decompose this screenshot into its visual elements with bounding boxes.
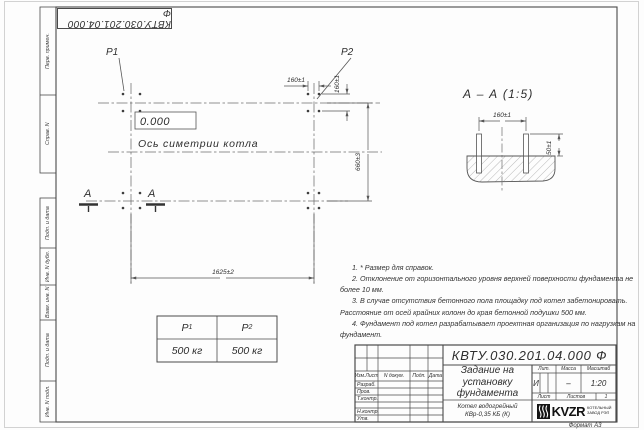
title-block-designation: КВТУ.030.201.04.000 Ф bbox=[443, 345, 616, 365]
title-block-product: Котел водогрейный КВр-0,35 КБ (К) bbox=[443, 400, 532, 422]
p1-leader-line bbox=[119, 58, 124, 91]
dim-160-vertical: 160±1 bbox=[334, 75, 341, 93]
tb-listov-value: 1 bbox=[596, 393, 616, 400]
plan-view: P1 P2 bbox=[79, 47, 382, 284]
logo-caption-line2: ЗАВОД РЭП bbox=[587, 410, 609, 415]
margin-label-inv-n-podl: Инв. N подл. bbox=[40, 381, 56, 422]
dim-660: 660±3 bbox=[355, 153, 362, 171]
symmetry-axis-label: Ось симетрии котла bbox=[138, 138, 258, 150]
tb-lit-value: И bbox=[532, 373, 540, 393]
kvzr-logo-text: KVZR bbox=[552, 404, 585, 419]
load-table-value-p2: 500 кг bbox=[217, 339, 277, 362]
notes-block: 1. * Размер для справок. 2. Отклонение о… bbox=[340, 262, 636, 340]
tb-row-razrab: Разраб. bbox=[355, 381, 380, 388]
dim-160-horizontal: 160±1 bbox=[287, 77, 305, 84]
tb-header-izm: Изм.Лист bbox=[355, 371, 378, 381]
title-block-doc-title: Задание на установку фундамента bbox=[445, 365, 530, 400]
margin-label-inv-n-dubl: Инв. N дубл. bbox=[40, 248, 56, 285]
section-letter-right: А bbox=[147, 188, 156, 200]
drawing-sheet: P1 P2 bbox=[0, 0, 644, 430]
note-3: 3. В случае отсутствия бетонного пола пл… bbox=[340, 295, 636, 317]
p1-label: P1 bbox=[106, 47, 118, 58]
section-view: А – А (1:5) 160±1 50±1 bbox=[462, 87, 563, 191]
kvzr-logo-caption: КОТЕЛЬНЫЙ ЗАВОД РЭП bbox=[587, 406, 611, 416]
section-dim-50: 50±1 bbox=[546, 140, 553, 155]
tb-list-label: Лист bbox=[532, 393, 556, 400]
load-table-header-p1: P1 bbox=[157, 316, 217, 339]
format-label: Формат А3 bbox=[545, 422, 625, 430]
tb-masshtab-header: Масштаб bbox=[581, 365, 616, 373]
margin-label-perv-primen: Перв. примен. bbox=[40, 7, 56, 95]
section-dim-160: 160±1 bbox=[493, 112, 511, 119]
product-line1: Котел водогрейный bbox=[458, 403, 518, 411]
note-2: 2. Отклонение от горизонтального уровня … bbox=[340, 273, 636, 295]
tb-row-nkontr: Н.контр. bbox=[355, 408, 380, 415]
elevation-label: 0.000 bbox=[140, 116, 170, 128]
note-4: 4. Фундамент под котел разрабатывает про… bbox=[340, 318, 636, 340]
p1-symbol: P bbox=[182, 322, 189, 334]
tb-logo-cell: KVZR КОТЕЛЬНЫЙ ЗАВОД РЭП bbox=[532, 400, 616, 422]
tb-massa-header: Масса bbox=[556, 365, 581, 373]
margin-label-podp-data-2: Подп. и дата bbox=[40, 320, 56, 381]
tb-row-tkontr: Т.контр. bbox=[355, 395, 380, 402]
load-table-value-p1: 500 кг bbox=[157, 339, 217, 362]
section-title: А – А (1:5) bbox=[462, 87, 534, 101]
rotated-code-stamp: КВТУ.030.201.04.000 Ф bbox=[57, 8, 172, 29]
tb-header-podp: Подп. bbox=[410, 371, 428, 381]
tb-row-utv: Утв. bbox=[355, 415, 380, 422]
p2-symbol: P bbox=[242, 322, 249, 334]
p2-label: P2 bbox=[341, 47, 354, 58]
tb-lit-header: Лит. bbox=[532, 365, 556, 373]
tb-listov-label: Листов bbox=[556, 393, 596, 400]
tb-massa-value: – bbox=[556, 373, 581, 393]
note-1: 1. * Размер для справок. bbox=[340, 262, 636, 273]
tb-header-ndoc: N докум. bbox=[378, 371, 410, 381]
margin-label-vzam-inv-n: Взам. инв. N bbox=[40, 285, 56, 320]
margin-label-podp-data-1: Подп. и дата bbox=[40, 198, 56, 248]
margin-label-sprav-n: Справ. N bbox=[40, 95, 56, 173]
tb-masshtab-value: 1:20 bbox=[581, 373, 616, 393]
dim-1625: 1625±2 bbox=[212, 269, 234, 276]
load-table-header-p2: P2 bbox=[217, 316, 277, 339]
tb-header-data: Дата bbox=[428, 371, 443, 381]
tb-row-prov: Пров. bbox=[355, 388, 380, 395]
section-letter-left: А bbox=[83, 188, 92, 200]
kvzr-logo-icon bbox=[537, 404, 550, 419]
product-line2: КВр-0,35 КБ (К) bbox=[465, 411, 510, 419]
